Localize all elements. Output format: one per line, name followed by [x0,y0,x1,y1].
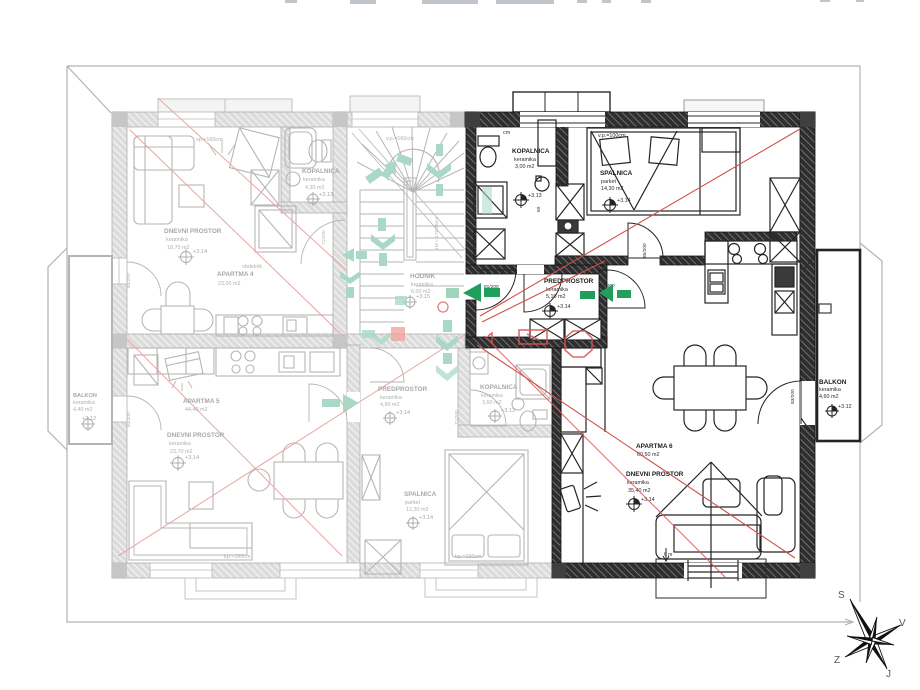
svg-text:3,60 m2: 3,60 m2 [482,400,501,406]
svg-text:BALKON: BALKON [73,393,97,399]
svg-text:DNEVNI PROSTOR: DNEVNI PROSTOR [626,471,684,478]
svg-text:93/200: 93/200 [790,389,796,404]
svg-text:parket: parket [601,179,616,185]
svg-text:keramika: keramika [514,157,536,163]
svg-text:+3.14: +3.14 [193,249,207,255]
svg-text:71/200: 71/200 [454,410,460,425]
svg-text:V: V [899,618,906,629]
svg-text:keramika: keramika [411,282,433,288]
svg-text:4,30 m2: 4,30 m2 [305,185,324,191]
svg-text:SPALNICA: SPALNICA [404,491,437,498]
svg-text:sp.=160cm: sp.=160cm [196,137,223,143]
svg-text:+3.13: +3.13 [501,408,515,414]
svg-text:85/200: 85/200 [642,243,648,258]
svg-text:+3.12: +3.12 [82,416,96,422]
svg-text:60: 60 [536,206,542,212]
svg-text:+3.13: +3.13 [528,193,542,199]
svg-text:v.p.=160cm: v.p.=160cm [386,136,414,142]
svg-text:83/200: 83/200 [126,273,132,288]
svg-text:1M = 175/25cm: 1M = 175/25cm [434,217,440,250]
svg-text:DNEVNI PROSTOR: DNEVNI PROSTOR [164,228,222,235]
svg-text:parket: parket [405,500,420,506]
svg-text:obdelnik: obdelnik [242,264,262,270]
svg-text:+3.14: +3.14 [557,304,571,310]
svg-text:14,30 m2: 14,30 m2 [601,186,623,192]
svg-text:+3.13: +3.13 [319,192,333,198]
svg-text:HODNIK: HODNIK [410,273,436,280]
svg-text:APARTMA 6: APARTMA 6 [636,443,673,450]
svg-text:keramika: keramika [303,177,325,183]
svg-text:SPALNICA: SPALNICA [600,170,633,177]
svg-text:3,00 m2: 3,00 m2 [515,164,534,170]
svg-text:keramika: keramika [819,387,841,393]
svg-text:DNEVNI PROSTOR: DNEVNI PROSTOR [167,432,225,439]
svg-text:S: S [838,590,845,601]
svg-text:keramika: keramika [481,393,503,399]
svg-text:KOPALNICA: KOPALNICA [480,384,518,391]
svg-text:4,90 m2: 4,90 m2 [380,402,399,408]
svg-text:kp.=160cm: kp.=160cm [224,554,251,560]
svg-text:4,40 m2: 4,40 m2 [73,407,92,413]
svg-text:+3.14: +3.14 [185,455,199,461]
svg-text:5,10 m2: 5,10 m2 [546,294,565,300]
svg-text:keramika: keramika [169,441,191,447]
svg-text:keramika: keramika [166,237,188,243]
svg-text:kp.=160cm: kp.=160cm [455,554,482,560]
svg-text:+3.14: +3.14 [617,198,631,204]
svg-text:+3.12: +3.12 [838,404,852,410]
svg-text:71/200: 71/200 [321,230,327,245]
svg-text:keramika: keramika [73,400,95,406]
svg-text:KOPALNICA: KOPALNICA [512,148,550,155]
svg-text:v.p.=100cm: v.p.=100cm [598,133,626,139]
svg-text:PREDPROSTOR: PREDPROSTOR [378,386,428,393]
svg-text:4,60 m2: 4,60 m2 [819,394,838,400]
svg-text:keramika: keramika [546,287,568,293]
svg-text:44,40 m2: 44,40 m2 [185,407,207,413]
svg-text:23,00 m2: 23,00 m2 [218,281,240,287]
svg-text:Z: Z [834,655,840,666]
svg-text:+3.14: +3.14 [396,410,410,416]
svg-text:+3.15: +3.15 [416,294,430,300]
svg-text:cm: cm [503,130,511,136]
svg-text:KOPALNICA: KOPALNICA [302,168,340,175]
svg-text:BALKON: BALKON [819,379,847,386]
svg-text:83/200: 83/200 [126,412,132,427]
svg-text:APARTMA 4: APARTMA 4 [217,271,254,278]
svg-text:J: J [886,669,891,680]
svg-text:keramika: keramika [380,395,402,401]
svg-text:APARTMA 5: APARTMA 5 [183,398,220,405]
svg-text:+3.14: +3.14 [419,515,433,521]
svg-text:12,30 m2: 12,30 m2 [406,507,428,513]
